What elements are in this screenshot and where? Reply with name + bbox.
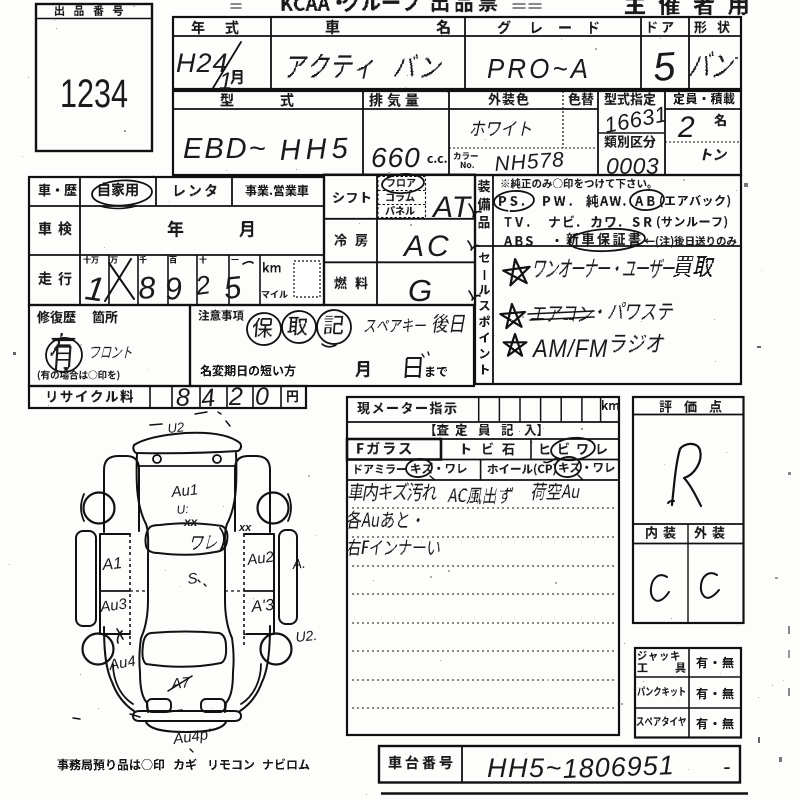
svg-text:Au1: Au1	[170, 481, 199, 501]
svg-text:Au2: Au2	[245, 548, 275, 569]
svg-text:1234: 1234	[60, 72, 128, 116]
svg-text:4: 4	[200, 384, 217, 413]
svg-text:0: 0	[255, 383, 269, 411]
svg-text:1806951: 1806951	[562, 750, 675, 784]
svg-text:5: 5	[652, 44, 678, 89]
svg-text:NH578: NH578	[494, 148, 566, 176]
svg-text:S: S	[187, 570, 199, 588]
svg-text:xx: xx	[238, 522, 252, 534]
svg-text:2: 2	[193, 269, 213, 301]
svg-text:PRO~A: PRO~A	[487, 53, 591, 84]
svg-text:1: 1	[83, 269, 107, 309]
svg-text:660: 660	[371, 142, 421, 173]
svg-text:HH5: HH5	[279, 132, 353, 167]
svg-text:A1: A1	[101, 555, 123, 574]
svg-text:xx: xx	[183, 515, 199, 529]
svg-text:9: 9	[163, 270, 184, 307]
svg-text:AM/FM: AM/FM	[531, 335, 608, 363]
svg-text:U2.: U2.	[295, 627, 318, 645]
svg-text:A.: A.	[291, 555, 307, 572]
svg-text:Au4p': Au4p'	[171, 726, 213, 748]
svg-text:U2: U2	[167, 419, 186, 436]
svg-text:Au3: Au3	[98, 595, 128, 616]
svg-text:2: 2	[677, 111, 695, 144]
svg-text:A'3: A'3	[250, 597, 275, 616]
svg-text:AC: AC	[402, 230, 452, 263]
svg-text:8: 8	[176, 384, 190, 412]
svg-text:2: 2	[228, 383, 243, 411]
svg-text:5: 5	[222, 269, 244, 306]
svg-text:8: 8	[137, 270, 157, 306]
svg-text:G: G	[408, 273, 432, 308]
svg-text:Au4: Au4	[107, 653, 137, 675]
svg-text:HH5~: HH5~	[487, 753, 563, 783]
svg-text:AT: AT	[431, 191, 473, 224]
svg-text:EBD~: EBD~	[183, 133, 268, 165]
svg-text:-: -	[723, 754, 730, 779]
